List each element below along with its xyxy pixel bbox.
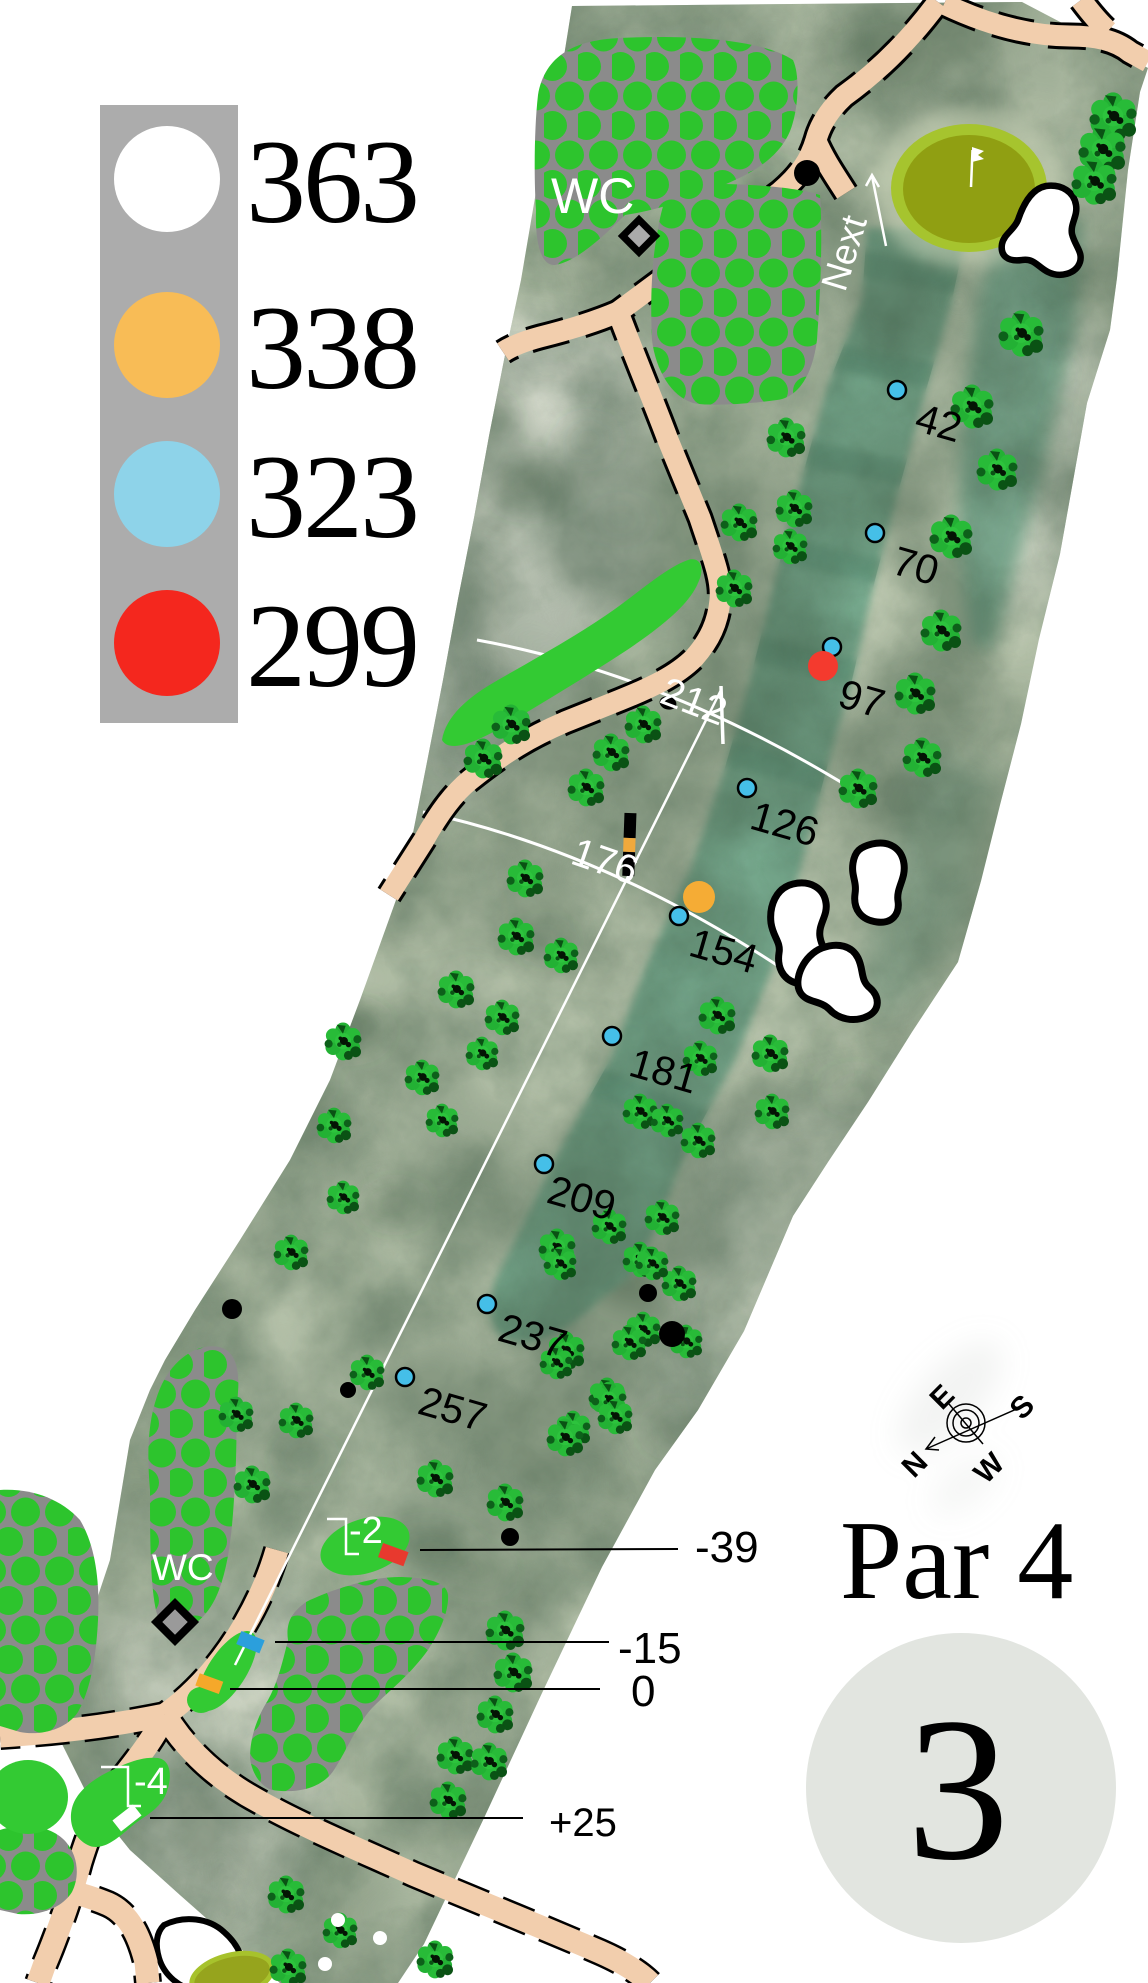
svg-text:+25: +25	[549, 1801, 617, 1845]
svg-text:WC: WC	[551, 168, 634, 224]
svg-text:299: 299	[246, 579, 417, 712]
svg-text:WC: WC	[152, 1547, 214, 1588]
svg-text:3: 3	[907, 1676, 1010, 1903]
svg-text:363: 363	[246, 115, 417, 248]
svg-text:0: 0	[631, 1667, 655, 1716]
svg-text:Par 4: Par 4	[840, 1499, 1073, 1623]
svg-text:-2: -2	[349, 1510, 383, 1552]
svg-text:-15: -15	[618, 1624, 682, 1673]
svg-text:-4: -4	[134, 1761, 168, 1803]
svg-text:323: 323	[246, 430, 417, 563]
svg-text:338: 338	[246, 281, 417, 414]
svg-text:-39: -39	[695, 1523, 759, 1572]
